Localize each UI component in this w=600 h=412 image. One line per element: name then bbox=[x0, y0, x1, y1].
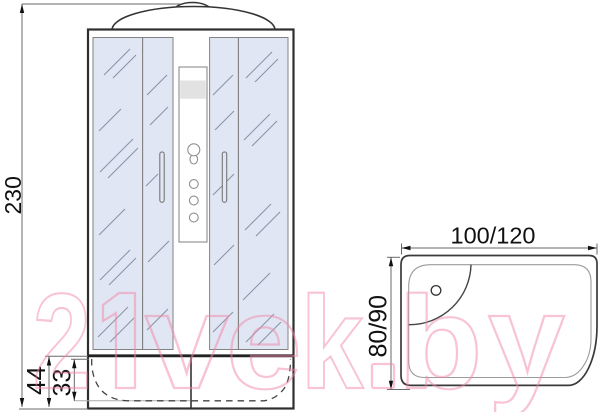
svg-text:y: y bbox=[488, 266, 565, 412]
svg-text:2: 2 bbox=[33, 265, 91, 412]
svg-text:k: k bbox=[301, 269, 365, 412]
svg-text:v: v bbox=[145, 266, 229, 412]
svg-text:e: e bbox=[226, 267, 302, 412]
svg-text:80/90: 80/90 bbox=[364, 295, 392, 358]
svg-text:230: 230 bbox=[0, 176, 26, 214]
svg-text:b: b bbox=[398, 269, 482, 412]
svg-text:100/120: 100/120 bbox=[451, 223, 536, 249]
